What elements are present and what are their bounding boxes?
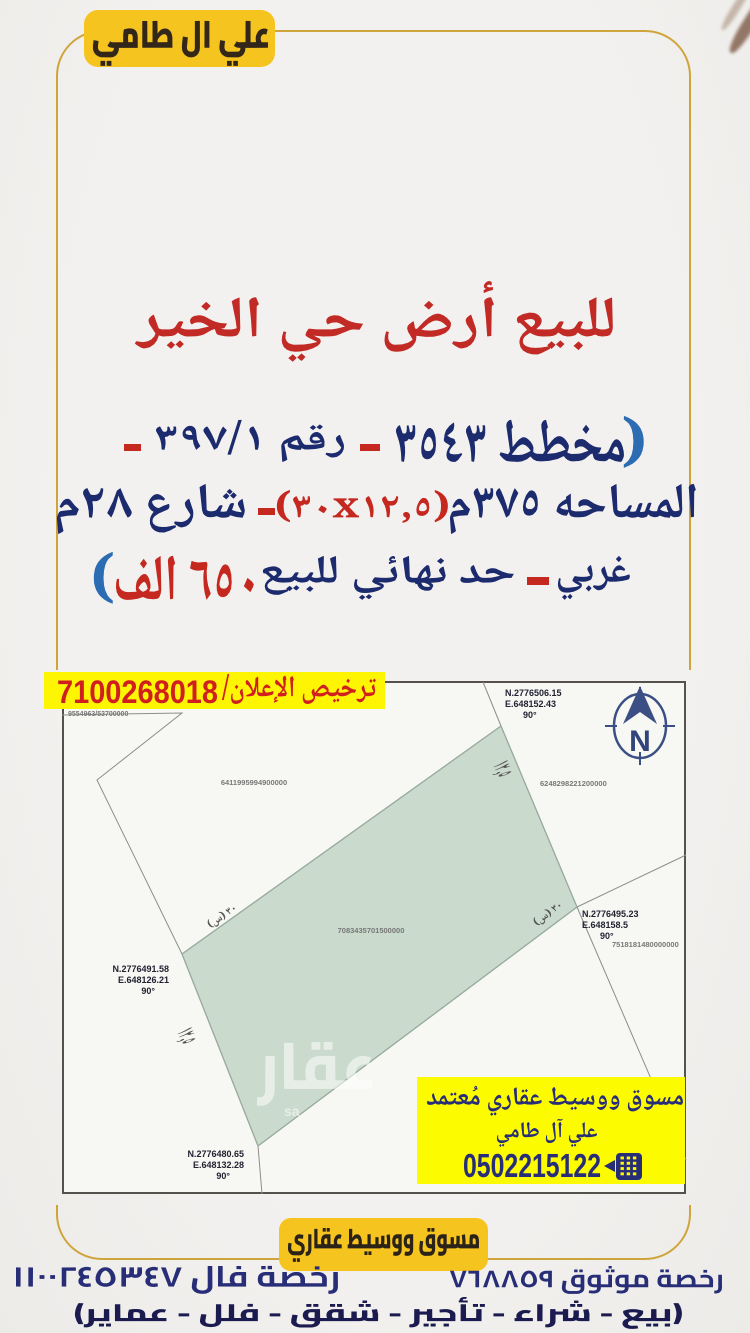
svg-text:0502215122: 0502215122 [463, 1147, 601, 1184]
svg-text:7100268018: 7100268018 [57, 674, 218, 710]
svg-text:sa: sa [284, 1103, 300, 1119]
svg-text:N: N [629, 725, 651, 758]
